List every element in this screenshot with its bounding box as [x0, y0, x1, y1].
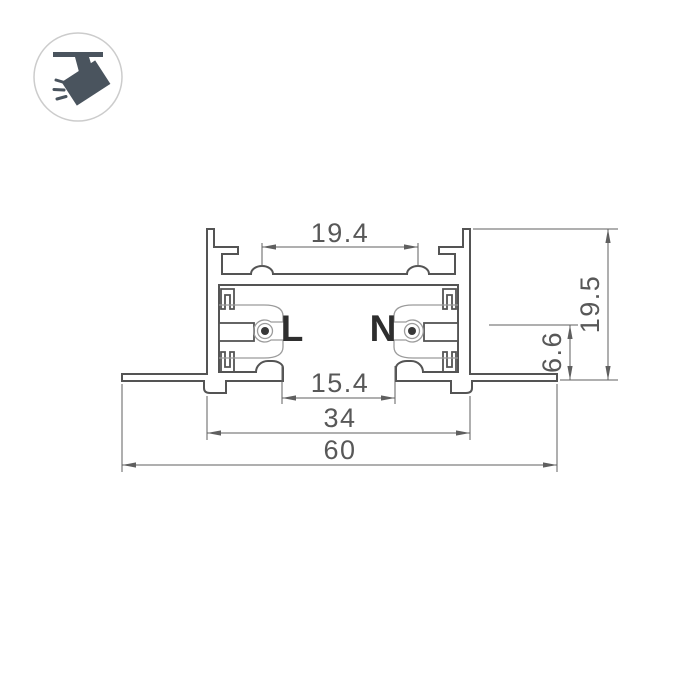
drawing-page: L N 19.4 19.5 6.6 1: [0, 0, 700, 700]
arrow-right-icon: [456, 430, 470, 435]
conductor-labels: L N: [281, 308, 397, 349]
label-neutral: N: [370, 308, 397, 349]
label-line: L: [281, 308, 304, 349]
tooth-right-bottom: [443, 352, 456, 372]
dim-body-width-value: 34: [323, 403, 356, 433]
arrow-right-icon: [381, 395, 395, 400]
tooth-left-top: [221, 289, 234, 309]
arrow-up-icon: [567, 325, 572, 339]
arrow-left-icon: [262, 244, 276, 249]
dim-body-width: 34: [207, 396, 470, 440]
dim-slot-pitch-value: 19.4: [311, 218, 370, 248]
arrow-left-icon: [282, 395, 296, 400]
arrow-right-icon: [404, 244, 418, 249]
tooth-right-top: [443, 289, 456, 309]
arrow-down-icon: [605, 366, 610, 380]
contact-bar-right: [424, 323, 458, 341]
dim-overall-height-value: 19.5: [575, 275, 605, 334]
arrow-down-icon: [567, 366, 572, 380]
arrow-left-icon: [122, 462, 136, 467]
arrow-up-icon: [605, 229, 610, 243]
conductor-dot-neutral: [408, 327, 416, 335]
dim-contact-height: 6.6: [489, 325, 578, 380]
arrow-left-icon: [207, 430, 221, 435]
tooth-left-bottom: [221, 352, 234, 372]
dim-aperture-width-value: 15.4: [311, 368, 370, 398]
track-light-thumbnail[interactable]: [34, 33, 122, 121]
contact-bar-left: [219, 323, 254, 341]
conductor-dot-line: [261, 327, 269, 335]
arrow-right-icon: [543, 462, 557, 467]
dim-slot-pitch: 19.4: [262, 218, 418, 267]
dim-overall-width-value: 60: [323, 435, 356, 465]
dim-aperture-width: 15.4: [282, 366, 395, 404]
dim-contact-height-value: 6.6: [537, 331, 567, 373]
